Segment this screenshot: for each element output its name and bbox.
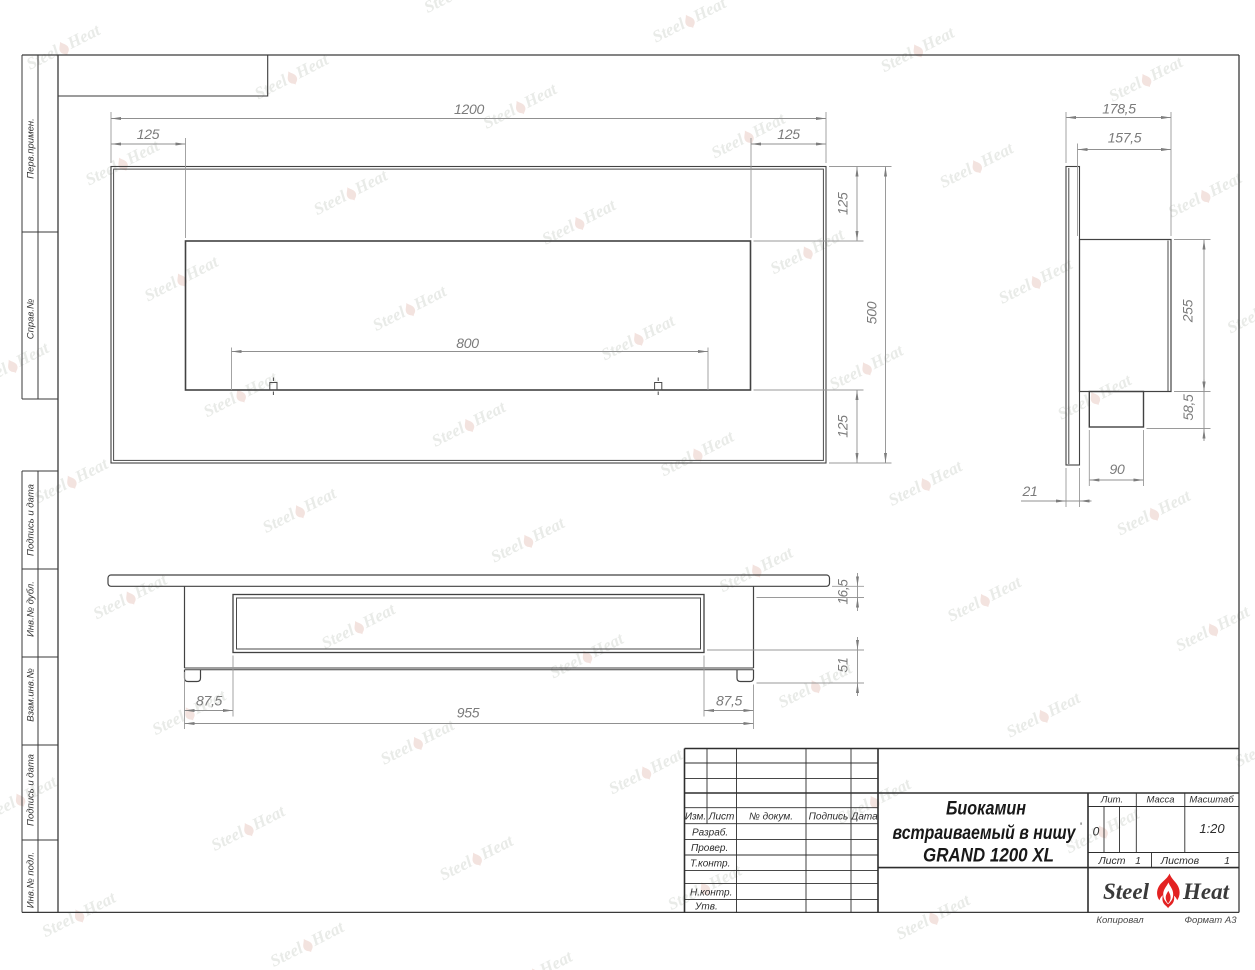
svg-text:Подпись: Подпись [809,812,849,823]
svg-text:Изм.: Изм. [685,812,706,823]
svg-text:1200: 1200 [454,101,484,117]
svg-text:Провер.: Провер. [691,843,728,854]
svg-text:Инв.№ дубл.: Инв.№ дубл. [26,581,37,637]
svg-text:Подпись и дата: Подпись и дата [26,484,37,556]
svg-text:Инв.№ подл.: Инв.№ подл. [26,852,37,908]
svg-text:Steel: Steel [1103,879,1150,904]
svg-text:Лист: Лист [1097,855,1125,867]
svg-text:157,5: 157,5 [1108,130,1142,146]
svg-text:125: 125 [137,126,160,142]
svg-text:87,5: 87,5 [716,693,743,709]
svg-text:21: 21 [1022,483,1038,499]
svg-text:Листов: Листов [1160,855,1200,867]
svg-text:90: 90 [1110,461,1125,477]
svg-text:0: 0 [1093,825,1100,839]
svg-text:125: 125 [777,126,800,142]
svg-text:Н.контр.: Н.контр. [690,888,732,899]
svg-text:955: 955 [457,705,480,721]
svg-text:Т.контр.: Т.контр. [690,859,730,870]
svg-text:встраиваемый в нишу: встраиваемый в нишу [893,823,1077,844]
svg-text:1: 1 [1135,855,1141,867]
svg-text:800: 800 [456,335,479,351]
svg-text:125: 125 [835,192,851,215]
svg-text:87,5: 87,5 [196,693,223,709]
svg-text:Утв.: Утв. [694,902,718,913]
svg-text:178,5: 178,5 [1102,101,1136,117]
svg-text:Heat: Heat [1182,879,1230,904]
svg-text:16,5: 16,5 [836,579,851,605]
svg-text:500: 500 [864,301,880,324]
svg-text:51: 51 [835,658,851,673]
svg-text:Взам.инв.№: Взам.инв.№ [26,668,37,721]
svg-text:1:20: 1:20 [1199,821,1225,836]
svg-text:Лист: Лист [708,812,735,823]
svg-text:Справ.№: Справ.№ [26,299,37,340]
svg-text:Копировал: Копировал [1096,915,1144,926]
svg-text:Подпись и дата: Подпись и дата [26,754,37,826]
svg-text:Перв.примен.: Перв.примен. [26,118,37,179]
svg-text:№ докум.: № докум. [749,812,793,823]
svg-text:Масштаб: Масштаб [1189,795,1234,806]
svg-text:1: 1 [1224,855,1230,867]
svg-text:255: 255 [1180,299,1196,323]
svg-text:': ' [1080,821,1082,833]
svg-text:GRAND 1200 XL: GRAND 1200 XL [923,846,1054,867]
svg-text:Формат A3: Формат A3 [1185,915,1238,926]
svg-text:Масса: Масса [1146,795,1174,806]
svg-text:Лит.: Лит. [1100,795,1123,806]
svg-text:125: 125 [835,415,851,438]
svg-text:Биокамин: Биокамин [946,799,1026,820]
svg-text:58,5: 58,5 [1180,394,1196,421]
svg-text:Дата: Дата [850,812,878,823]
svg-text:Разраб.: Разраб. [692,827,728,839]
